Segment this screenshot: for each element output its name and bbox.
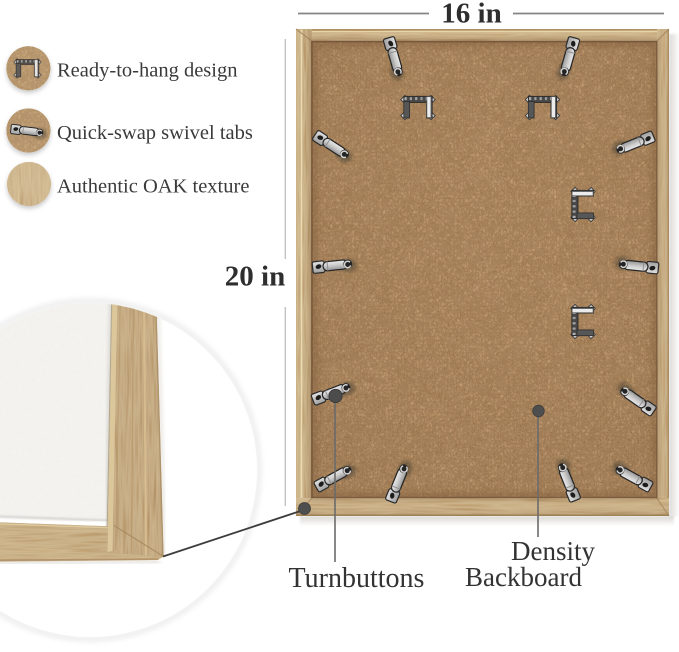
svg-text:20 in: 20 in	[225, 261, 285, 293]
svg-text:Turnbuttons: Turnbuttons	[289, 563, 425, 594]
svg-text:Backboard: Backboard	[465, 562, 582, 592]
svg-text:16 in: 16 in	[441, 0, 501, 30]
svg-text:Ready-to-hang design: Ready-to-hang design	[57, 60, 237, 82]
svg-text:Quick-swap swivel tabs: Quick-swap swivel tabs	[57, 122, 253, 144]
svg-text:Authentic OAK texture: Authentic OAK texture	[57, 176, 249, 198]
